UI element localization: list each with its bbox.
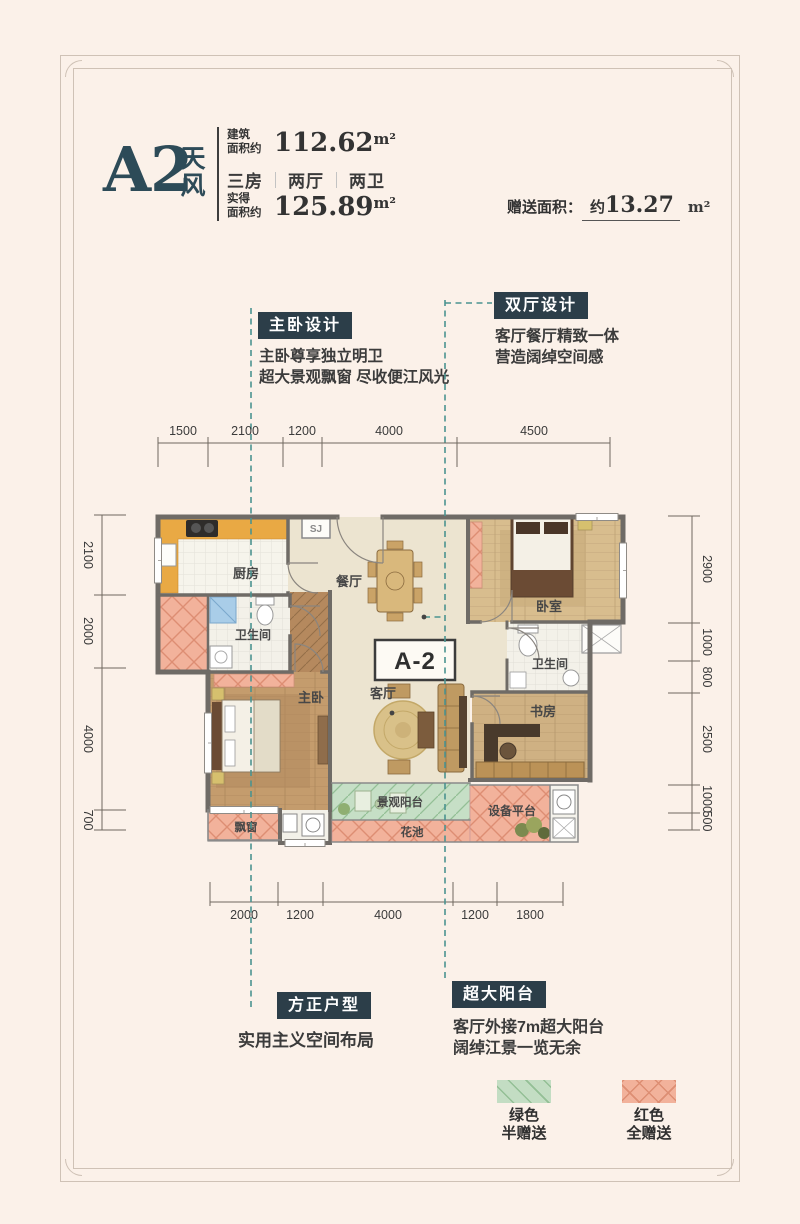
layout-baths: 两卫	[349, 167, 385, 192]
room-label-equipment: 设备平台	[488, 803, 536, 818]
dim-left-4: 700	[81, 790, 95, 850]
callout-master-line1: 主卧尊享独立明卫	[259, 344, 383, 366]
dim-top-3: 1200	[267, 424, 337, 438]
unit-label-box: A-2	[375, 640, 455, 680]
dim-right-4: 2500	[700, 709, 714, 769]
legend-red-swatch	[622, 1080, 676, 1103]
callout-master-badge: 主卧设计	[258, 312, 352, 339]
layout-summary: 三房 两厅 两卫	[227, 167, 385, 192]
dim-right-6: 500	[700, 791, 714, 851]
room-label-bath1: 卫生间	[235, 627, 271, 642]
dim-right-1: 2900	[700, 539, 714, 599]
callout-balcony-badge: 超大阳台	[452, 981, 546, 1008]
gift-area: 赠送面积： 约13.27 m²	[507, 192, 710, 221]
callout-halls-line1: 客厅餐厅精致一体	[495, 324, 619, 346]
dim-right-3: 800	[700, 647, 714, 707]
layout-separator	[275, 172, 276, 188]
built-area-label: 建筑面积约	[227, 129, 262, 157]
dim-left-3: 4000	[81, 709, 95, 769]
dim-left-2: 2000	[81, 601, 95, 661]
room-label-flower-bed: 花池	[401, 825, 424, 839]
legend-green-swatch	[497, 1080, 551, 1103]
room-label-master: 主卧	[298, 690, 324, 705]
floor-plan: A-2 厨房 餐厅 卫生间 主卧 客厅 卧室 卫生间 书房 飘窗 景观阳台 花池…	[150, 508, 670, 848]
unit-name-char-1: 天	[179, 146, 207, 173]
gift-area-unit: m²	[688, 198, 710, 216]
dim-bottom-2: 1200	[265, 908, 335, 922]
gift-area-value: 约13.27	[582, 192, 680, 221]
dim-top-1: 1500	[148, 424, 218, 438]
room-label-study: 书房	[530, 704, 556, 719]
callout-square-line1: 实用主义空间布局	[238, 1026, 374, 1051]
dim-bottom-3: 4000	[353, 908, 423, 922]
room-label-bay-window: 飘窗	[235, 820, 258, 834]
actual-area-value: 125.89m²	[274, 194, 396, 220]
callout-halls-badge: 双厅设计	[494, 292, 588, 319]
unit-label-text: A-2	[394, 648, 436, 675]
layout-separator	[336, 172, 337, 188]
layout-rooms: 三房	[227, 167, 263, 192]
room-label-balcony: 景观阳台	[376, 795, 423, 809]
dim-top-4: 4000	[354, 424, 424, 438]
dim-left-1: 2100	[81, 525, 95, 585]
unit-name-vertical: 天 风	[179, 146, 207, 200]
dim-bottom-5: 1800	[495, 908, 565, 922]
built-area-value: 112.62m²	[274, 130, 396, 156]
callout-square-badge: 方正户型	[277, 992, 371, 1019]
room-label-kitchen: 厨房	[233, 566, 259, 581]
callout-balcony-line2: 阔绰江景一览无余	[453, 1034, 581, 1058]
floorplan-flyer-page: { "colors": { "page_bg": "#fbf1e9", "tit…	[0, 0, 800, 1224]
dim-top-5: 4500	[499, 424, 569, 438]
unit-name-char-2: 风	[179, 173, 207, 200]
legend-green-label: 绿色半赠送	[484, 1107, 564, 1143]
layout-halls: 两厅	[288, 167, 324, 192]
legend-red-label: 红色全赠送	[609, 1107, 689, 1143]
room-label-shaft: SJ	[310, 524, 322, 535]
room-label-dining: 餐厅	[335, 574, 362, 589]
room-label-bath2: 卫生间	[532, 656, 568, 671]
callout-halls-line2: 营造阔绰空间感	[495, 345, 604, 367]
actual-area-label: 实得面积约	[227, 193, 262, 221]
room-label-living: 客厅	[370, 686, 396, 701]
header-divider	[217, 127, 219, 221]
room-label-bedroom: 卧室	[536, 599, 562, 614]
callout-master-line2: 超大景观飘窗 尽收便江风光	[259, 365, 449, 387]
gift-area-label: 赠送面积：	[507, 196, 582, 217]
